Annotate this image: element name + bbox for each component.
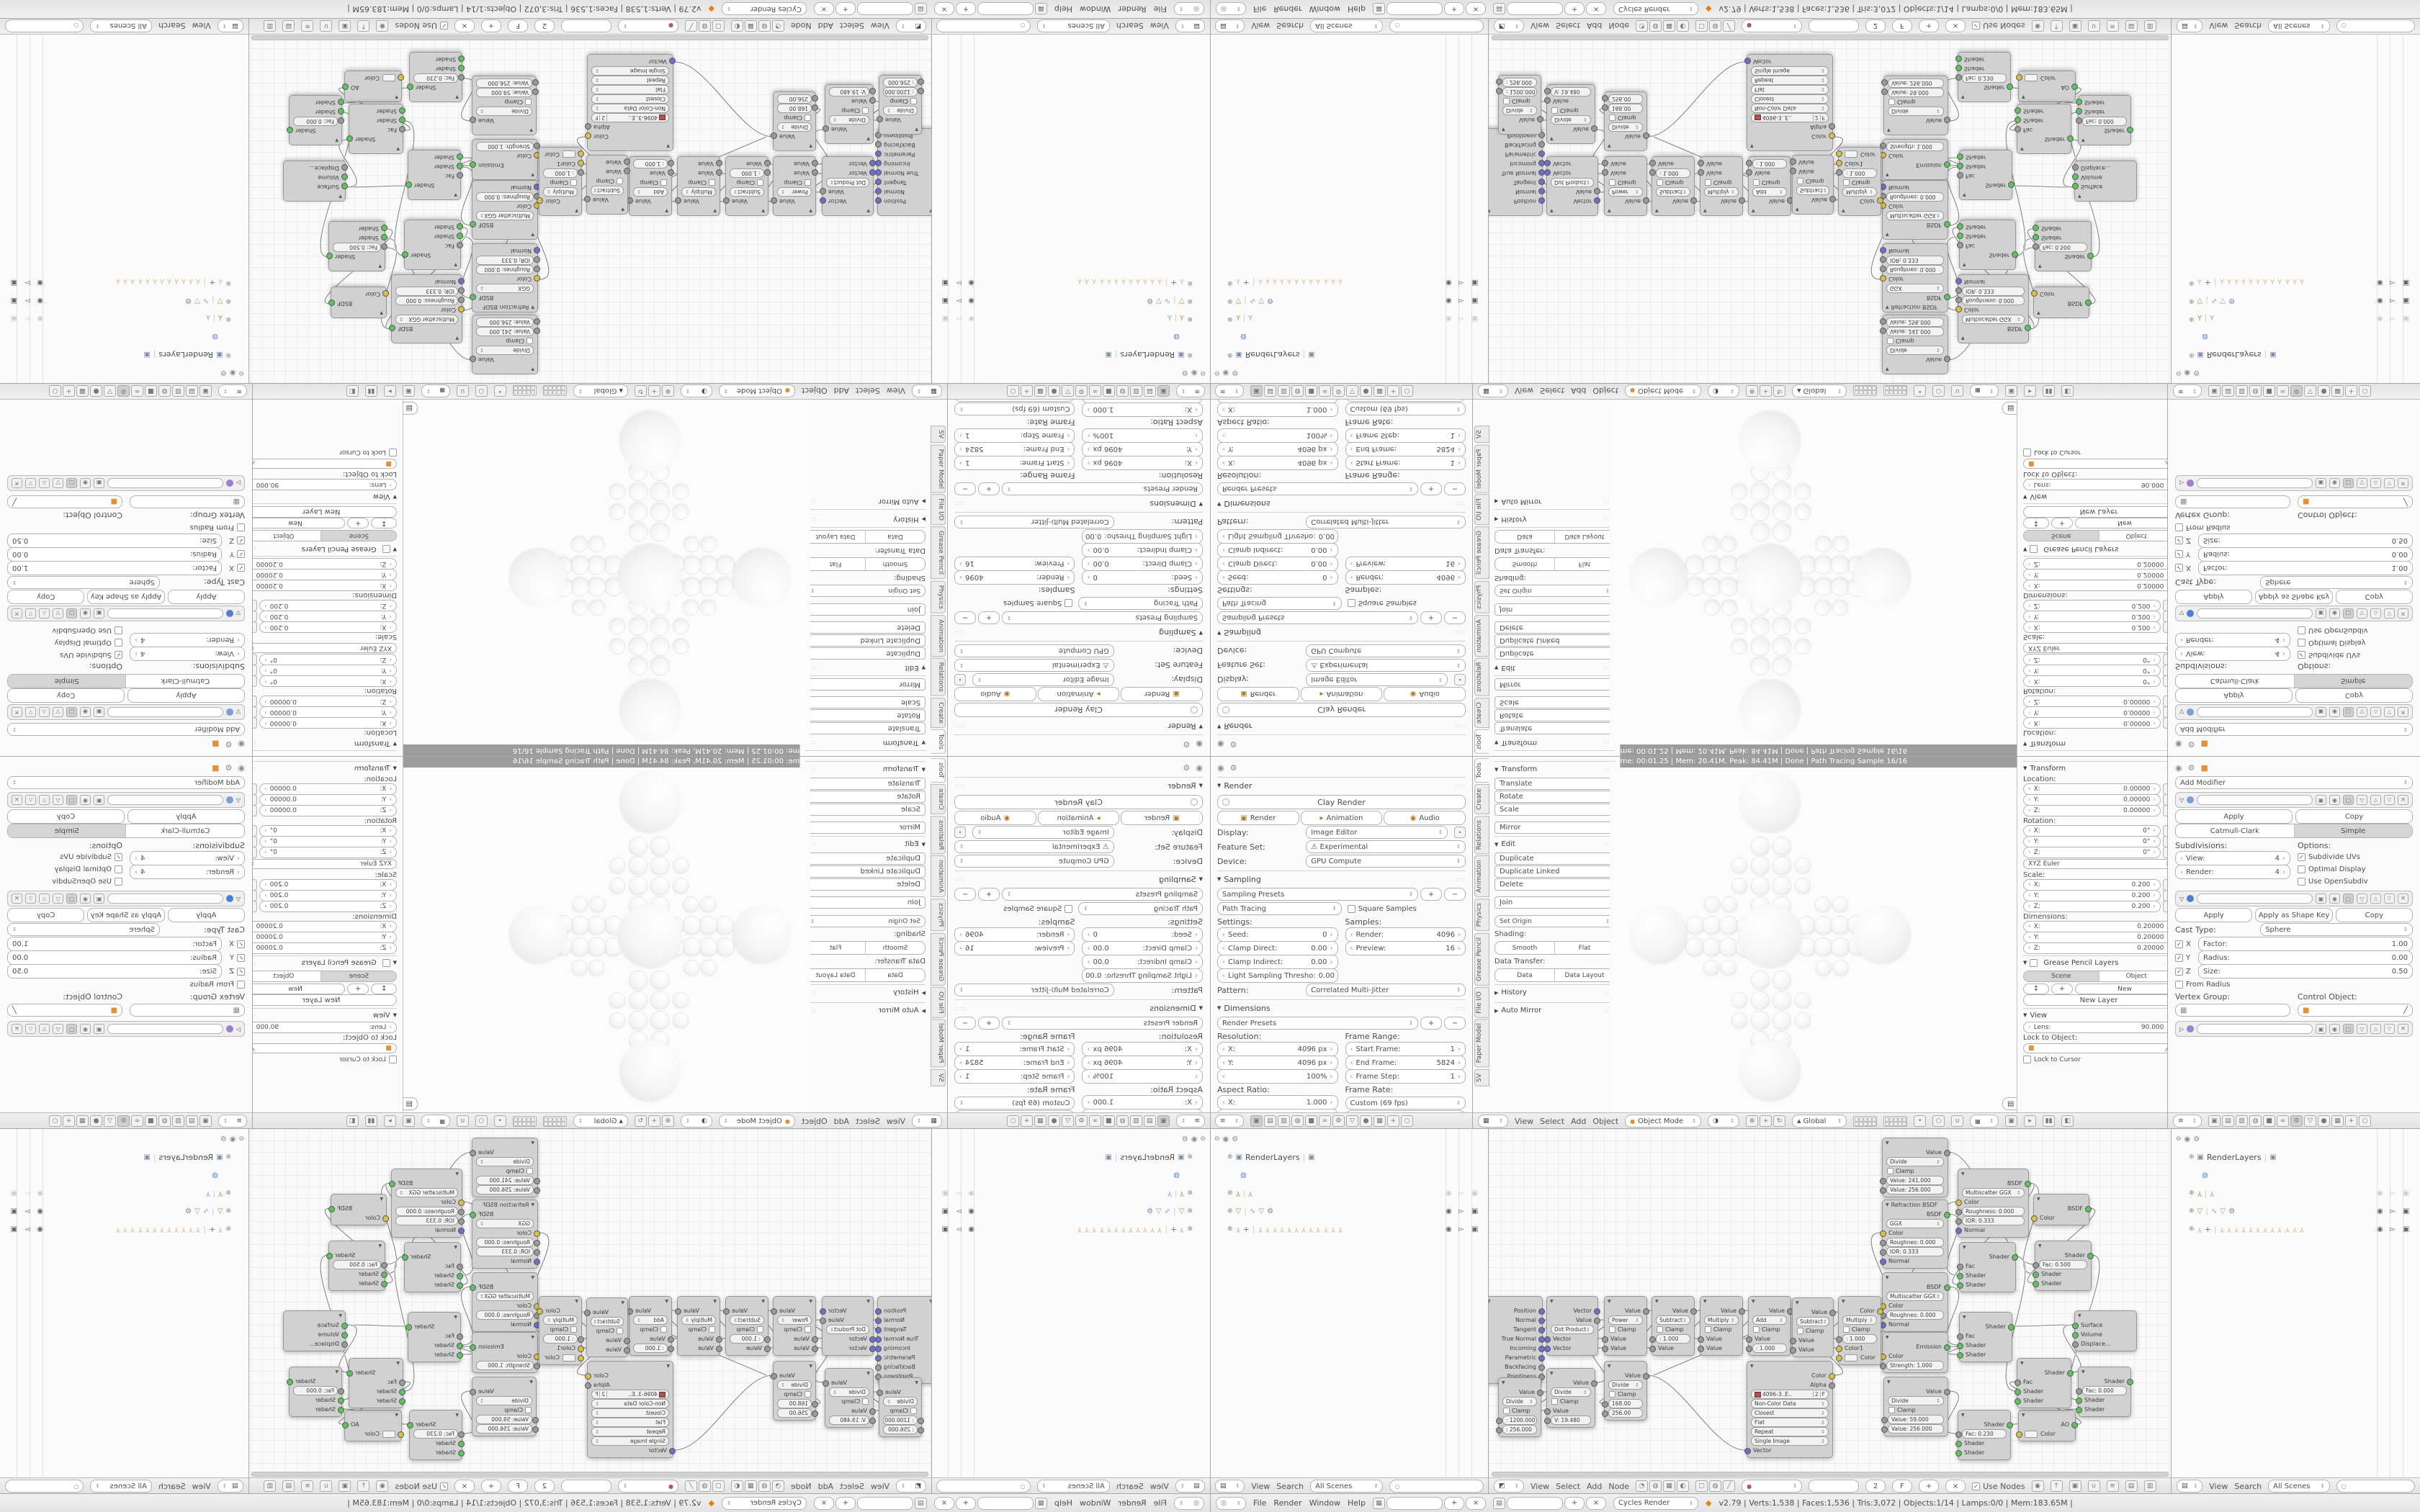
pin-icon[interactable]: ◉ [2175,740,2182,750]
collapse-icon[interactable]: ▼ [1608,1299,1611,1304]
stepper-left-icon[interactable]: ‹ [2028,849,2031,856]
output-socket[interactable] [723,1308,730,1315]
node-header[interactable]: ▼ [1883,170,1948,179]
image-datablock-row[interactable]: 4096-3..E..2F [1751,113,1829,122]
dropdown-field[interactable]: GPU Compute↕ [954,855,1114,868]
move-up-button[interactable]: △ [2370,894,2381,904]
stepper-right-icon[interactable]: › [264,698,267,705]
selectability-icon[interactable]: ▻ [956,1204,962,1218]
stepper-right-icon[interactable]: › [1330,1045,1333,1053]
toggle-option[interactable]: Smooth [866,942,925,954]
shader-node[interactable]: ▼ValueDivide↕ClampValue: 59.000Value: 25… [1883,1377,1948,1436]
stepper-left-icon[interactable]: ‹ [389,656,392,663]
stepper-left-icon[interactable]: ‹ [1350,574,1353,582]
checkbox[interactable] [1065,905,1072,913]
node-dropdown[interactable]: Divide↕ [476,1396,532,1405]
expander-icon[interactable]: ▽ [2179,797,2184,804]
manipulator-icon[interactable]: ⊕ [1746,1115,1758,1127]
stepper-right-icon[interactable]: › [1330,446,1333,454]
number-field[interactable]: ‹100%› [1217,1069,1338,1084]
material-selector[interactable]: ●↕ [1742,1480,1802,1493]
stepper-left-icon[interactable]: ‹ [1067,945,1070,953]
stepper-left-icon[interactable]: ‹ [389,903,392,910]
collapse-icon[interactable]: ▼ [1796,207,1799,212]
big-button[interactable]: Clay Render [954,795,1203,809]
shading-dropdown[interactable]: ◑↕ [1708,1115,1739,1128]
input-socket[interactable] [624,1347,630,1354]
output-socket[interactable] [2012,1254,2018,1261]
input-socket[interactable] [1544,1336,1551,1343]
menu-search[interactable]: Search [1276,22,1304,31]
modifier-toggle-icon[interactable]: ▽ [2357,894,2367,904]
node-dropdown[interactable]: Subtract↕ [1796,1317,1829,1326]
number-field[interactable]: ‹Z:0°› [259,847,397,858]
shader-context-icon[interactable]: ▦ [1663,20,1675,32]
shader-node[interactable]: ▼VectorValueDot Product↕VectorVector [1546,156,1598,216]
big-button[interactable]: New Layer [246,994,397,1006]
stepper-right-icon[interactable]: › [1458,1073,1461,1081]
layer-dot[interactable] [518,1117,522,1122]
fake-user-button[interactable]: F [508,1480,528,1493]
stepper-right-icon[interactable]: › [959,560,962,568]
button[interactable]: Apply [127,688,245,703]
editor-type-selector[interactable]: ◩↕ [1494,1480,1524,1493]
number-field[interactable]: ‹Seed:0› [1217,927,1338,942]
input-socket[interactable] [534,1240,540,1246]
stepper-right-icon[interactable]: › [959,1073,962,1081]
input-socket[interactable] [869,1408,876,1415]
panel-section-header[interactable]: ▼Render:::: [1217,777,1466,793]
collapse-icon[interactable]: ▼ [1502,1380,1505,1385]
dropdown-field[interactable]: Set Origin↕ [1494,915,1615,927]
stepper-left-icon[interactable]: ‹ [1222,546,1225,554]
checkbox-row[interactable]: From Radius [7,978,245,991]
node-editor-scrollbar[interactable] [1492,35,2169,40]
number-field[interactable]: ‹Seed:0› [1083,927,1204,942]
checkbox[interactable] [115,878,122,886]
output-socket[interactable] [1643,1308,1649,1315]
node-header[interactable]: ▼ [1793,1298,1833,1308]
output-socket[interactable] [1877,197,1883,204]
modifier-name-field[interactable] [107,795,223,805]
properties-tab-icon[interactable]: + [2345,1115,2357,1127]
stepper-left-icon[interactable]: ‹ [2028,934,2031,941]
outliner-row[interactable]: ⊕▣RenderLayers|▣ [1227,348,1315,362]
shader-node[interactable]: ▼PositionNormalTangentTrue NormalIncomin… [877,1296,931,1384]
input-socket[interactable] [1602,1410,1608,1417]
number-field[interactable]: ‹End Frame:5824› [954,1056,1075,1070]
modifier-toggle-icon[interactable]: ▽ [2357,795,2367,805]
stepper-left-icon[interactable]: ‹ [1195,459,1198,467]
input-socket[interactable] [1544,97,1551,104]
node-checkbox[interactable] [1503,98,1510,104]
outliner-row[interactable]: ⊕Y+|YYYYYYYYYYYY [1227,1222,1343,1236]
properties-tab-icon[interactable]: ▣ [1157,385,1170,397]
output-socket[interactable] [1944,1284,1950,1291]
menu-view[interactable]: View [1150,1482,1169,1491]
add-material-button[interactable]: + [1919,19,1939,32]
checkbox[interactable]: ✓ [2175,564,2183,572]
stepper-right-icon[interactable]: › [135,650,138,658]
node-checkbox[interactable] [709,1326,715,1333]
properties-tab-icon[interactable]: ◍ [1116,385,1129,397]
properties-tab-icon[interactable]: ▦ [76,385,89,397]
layer-dot[interactable] [552,387,557,391]
input-socket[interactable] [457,1333,463,1340]
toggle-option[interactable]: Data Layout [1554,969,1614,981]
menu-render[interactable]: Render [1273,1498,1301,1508]
add-button[interactable]: + [835,1497,856,1510]
properties-tab-icon[interactable]: ▤ [186,1115,198,1127]
outliner-row[interactable]: ⊕Y+|YYYYYYYYYYYY [2189,276,2304,290]
output-socket[interactable] [1690,1308,1697,1315]
axis-checkbox[interactable]: ✓X [2175,940,2194,948]
properties-tab-icon[interactable]: ⚙ [117,1115,130,1127]
input-socket[interactable] [1836,169,1842,176]
node-number-field[interactable]: Value: 256.000 [1886,1185,1944,1194]
expand-icon[interactable]: ⊕ [1187,1189,1193,1197]
properties-tab-icon[interactable]: ▣ [1157,1115,1170,1127]
node-header-icon[interactable]: ▥ [264,1480,276,1492]
stepper-right-icon[interactable]: › [264,827,267,834]
visibility-icon[interactable]: ◉ [2377,1186,2383,1200]
shader-context-icon[interactable]: ▦ [1663,1480,1675,1492]
node-header-icon[interactable]: ∪ [320,1480,332,1492]
layer-dot[interactable] [544,1117,548,1122]
outliner-row[interactable]: ⊕Y+|YYYYYYYYYYYY [1077,276,1193,290]
output-socket[interactable] [1829,123,1835,130]
stepper-right-icon[interactable]: › [2153,678,2156,685]
panel-section-header[interactable]: ▼Transform:::: [805,735,926,751]
input-socket[interactable] [1746,1336,1752,1343]
number-field[interactable]: Factor:1.00 [7,561,222,575]
input-socket[interactable] [341,1323,348,1329]
node-header[interactable]: ▼ [539,1297,581,1306]
stepper-left-icon[interactable]: ‹ [1222,560,1225,568]
output-socket[interactable] [675,1308,681,1315]
shelf-button[interactable]: Duplicate Linked [1494,865,1615,878]
number-field[interactable]: Radius:0.00 [7,547,222,562]
collapse-icon[interactable]: ▼ [809,208,812,213]
section-checkbox[interactable] [382,546,390,554]
add-preset-button[interactable]: + [1420,1017,1442,1030]
node-number-field[interactable]: Fac: 0.230 [1962,1429,2007,1439]
layer-dot[interactable] [557,387,561,391]
input-socket[interactable] [624,1338,630,1344]
move-up-button[interactable]: △ [39,478,50,488]
name-field[interactable] [977,1497,1034,1510]
color-swatch[interactable] [382,1431,395,1438]
node-header[interactable]: ▼ [1960,1313,2012,1322]
user-count-button[interactable]: 2 [1865,19,1886,32]
properties-tab-icon[interactable]: ■ [145,1115,157,1127]
shelf-tab-grease-pencil[interactable]: Grease Pencil [1474,933,1489,986]
visibility-icon[interactable]: ◉ [968,1222,974,1236]
outliner-item-label[interactable]: RenderLayers [2207,351,2262,360]
stepper-right-icon[interactable]: › [1088,1045,1090,1053]
stepper-right-icon[interactable]: › [1330,1059,1333,1067]
node-dropdown[interactable]: Multiply↕ [681,187,716,197]
properties-tab-icon[interactable]: ▥ [1278,385,1290,397]
color-swatch[interactable] [1845,1354,1857,1362]
node-dropdown[interactable]: Repeat↕ [1751,1427,1829,1436]
panel-section-header[interactable]: ▼Transform:::: [2023,761,2174,775]
shader-node[interactable]: ▼ColorAlpha4096-3..E..2FNon-Color Data↕C… [1747,1361,1833,1458]
lock-icon[interactable]: • [494,1115,506,1127]
input-socket[interactable] [1496,88,1502,94]
visibility-icon[interactable]: ◉ [1446,1222,1452,1236]
input-socket[interactable] [534,1249,540,1256]
input-socket[interactable] [716,160,722,166]
node-checkbox[interactable] [1888,1407,1895,1413]
modifier-toggle-icon[interactable]: ▢ [66,608,77,618]
node-dropdown[interactable]: Non-Color Data↕ [1751,104,1829,113]
shader-context-icon[interactable]: ◔ [1636,20,1648,32]
output-socket[interactable] [1594,188,1600,194]
selectability-icon[interactable]: ▻ [2390,1186,2396,1200]
node-checkbox[interactable] [805,179,811,186]
checkbox-row[interactable]: ✓Subdivide UVs [7,851,122,863]
panel-section-header[interactable]: ▼Dimensions:::: [954,999,1203,1016]
node-checkbox[interactable] [1551,107,1558,114]
renderability-icon[interactable]: ▣ [942,1222,949,1236]
delete-modifier-button[interactable]: × [12,478,22,488]
expand-icon[interactable]: ⊕ [2189,1153,2195,1161]
stepper-right-icon[interactable]: › [264,708,267,716]
checkbox-row[interactable]: Square Samples [1003,905,1072,913]
outliner-row[interactable]: ⊕▽|∿▽⚙ [185,1204,231,1218]
shelf-tab-file-i-o[interactable]: File I/O [1474,495,1489,526]
dropdown-field[interactable]: Path Tracing↕ [1217,902,1342,915]
axis-checkbox[interactable]: ✓Y [2175,551,2194,559]
layers-widget[interactable] [1883,386,1907,397]
collapse-icon[interactable]: ▼ [809,1364,812,1369]
panel-section-header[interactable]: ▼Render:::: [1217,719,1466,735]
color-swatch[interactable] [1845,151,1857,158]
number-field[interactable]: Radius:0.00 [2198,950,2413,965]
input-socket[interactable] [1544,1408,1551,1415]
output-socket[interactable] [585,1373,591,1380]
renderability-icon[interactable]: ▣ [11,1186,17,1200]
shader-node[interactable]: ▼Refraction BSDFBSDFGGX↕ColorRoughnes: 0… [1882,243,1948,312]
add-button[interactable]: + [1444,3,1464,16]
renderability-icon[interactable]: ▣ [1471,276,1478,290]
node-dropdown[interactable]: GGX↕ [1886,284,1944,293]
add-preset-button[interactable]: + [978,1017,1000,1030]
node-checkbox[interactable] [660,1326,667,1333]
panel-section-header[interactable]: ▼Transform:::: [246,737,397,751]
collapse-icon[interactable]: ▼ [2020,1361,2024,1366]
properties-tab-icon[interactable]: ● [2318,385,2330,397]
number-field[interactable]: ‹X:0.00000› [259,783,397,795]
button[interactable]: ▸Animation [1038,811,1120,825]
button[interactable]: ▸Animation [1038,687,1120,701]
shelf-button[interactable]: Rotate [805,791,926,803]
snap-element-dropdown[interactable]: ▦↕ [1970,384,1999,397]
output-socket[interactable] [470,1344,476,1351]
input-socket[interactable] [2015,117,2021,123]
toggle-option[interactable]: Scene [322,971,397,981]
menu-add[interactable]: Add [1571,387,1586,396]
checkbox-row[interactable]: ✓Subdivide UVs [2298,649,2413,661]
shader-node[interactable]: ▼BSDFColor [2033,1194,2089,1225]
node-dropdown[interactable]: Closest↕ [1751,1408,1829,1418]
expand-icon[interactable]: ⊕ [1187,279,1193,287]
properties-tab-icon[interactable]: ◍ [2249,385,2262,397]
input-socket[interactable] [1544,1418,1551,1424]
dropdown-field[interactable]: Correlated Multi-Jitter↕ [954,984,1114,996]
input-socket[interactable] [341,1341,348,1348]
node-dropdown[interactable]: Power↕ [777,187,812,197]
display-mode-dropdown[interactable]: All Scenes↕ [2268,1480,2330,1493]
node-dropdown[interactable]: Divide↕ [1551,1387,1591,1397]
render-shortcut-icon[interactable]: ▣ [403,1115,415,1127]
shelf-tab-tools[interactable]: Tools [931,758,946,783]
shelf-button[interactable]: Duplicate Linked [805,634,926,647]
checkbox[interactable] [2023,1056,2031,1063]
viewport-render-region[interactable] [403,399,810,744]
snap-magnet-icon[interactable]: ∪ [457,385,469,397]
toggle-option[interactable]: Data [866,531,925,543]
number-field[interactable]: ‹X:4096 px› [1217,456,1338,470]
modifier-name-field[interactable] [107,707,223,717]
checkbox[interactable] [2298,639,2305,647]
checkbox[interactable]: ✓ [2175,954,2183,962]
expand-icon[interactable]: ⊕ [2189,297,2195,305]
layer-dot[interactable] [561,1122,565,1126]
node-number-field[interactable]: : 1.000 [1656,168,1690,178]
number-field[interactable]: ‹Light Sampling Thresho:0.00› [1083,529,1204,544]
properties-tab-icon[interactable]: ◍ [1116,1115,1129,1127]
input-socket[interactable] [1957,1264,1963,1270]
input-socket[interactable] [341,1332,348,1338]
node-number-field[interactable]: IOR: 0.333 [1962,1216,2025,1225]
properties-tab-icon[interactable]: ▥ [1278,1115,1290,1127]
node-dropdown[interactable]: Subtract↕ [730,1315,764,1325]
expand-icon[interactable]: ⊕ [1187,1225,1193,1233]
collapse-icon[interactable]: ▼ [529,1380,533,1385]
visibility-icon[interactable]: ◉ [37,1204,43,1218]
stepper-right-icon[interactable]: › [1330,432,1333,440]
shader-node[interactable]: ▼ShaderFacShaderShader [2017,104,2071,154]
expand-icon[interactable]: ⊕ [1227,351,1233,359]
output-socket[interactable] [1538,188,1545,194]
output-socket[interactable] [675,197,681,204]
name-field[interactable] [1507,3,1563,16]
editor-type-selector[interactable]: ▦↕ [1478,1115,1508,1128]
expand-icon[interactable]: ⊖ [1200,1135,1206,1143]
selectability-icon[interactable]: ▻ [956,1186,962,1200]
dropdown-field[interactable]: Image Editor↕ [1306,673,1448,686]
toggle-option[interactable]: Object [2099,971,2174,981]
checkbox[interactable]: ✓ [237,968,245,976]
stepper-left-icon[interactable]: ‹ [2028,602,2031,609]
shader-node[interactable]: ▼ShaderFacShaderShader [1959,220,2016,270]
pin-icon[interactable]: ⚙ [2188,740,2195,750]
modifier-name-field[interactable] [2197,795,2313,805]
toggle-option[interactable]: Smooth [866,558,925,570]
use-nodes-toggle[interactable]: ✓Use Nodes [1972,1482,2025,1491]
checkbox[interactable]: ✓ [237,940,245,948]
shelf-tab-paper-model[interactable]: Paper Model [931,1019,946,1067]
outliner-item-label[interactable]: RenderLayers [1245,351,1300,360]
checkbox[interactable] [115,639,122,647]
node-header[interactable]: ▼ [1489,206,1542,215]
shelf-button[interactable]: Delete [805,878,926,891]
properties-tab-icon[interactable]: ▤ [2222,385,2234,397]
input-socket[interactable] [1790,1347,1796,1354]
menu-select[interactable]: Select [1540,387,1564,396]
properties-tab-icon[interactable]: ⚙ [1332,1115,1345,1127]
node-dropdown[interactable]: GGX↕ [1886,1219,1944,1228]
presets-dropdown[interactable]: Render Presets↕ [1217,1017,1418,1030]
stepper-right-icon[interactable]: › [959,574,962,582]
node-header[interactable]: ▼ [1839,206,1881,215]
input-socket[interactable] [1881,1417,1888,1423]
node-dropdown[interactable]: Repeat↕ [591,1427,669,1436]
number-field[interactable]: ‹100%› [1083,1069,1204,1084]
toggle-option[interactable]: Smooth [1495,558,1554,570]
input-socket[interactable] [1746,169,1752,176]
input-socket[interactable] [381,1281,387,1287]
shader-node[interactable]: ▼ShaderFac: 0.000ShaderShader [2078,1367,2131,1417]
node-number-field[interactable]: : 1.000 [1842,1334,1877,1344]
expand-icon[interactable]: ⊕ [1187,315,1193,323]
modifier-toggle-icon[interactable]: ▢ [66,1024,77,1034]
shader-node[interactable]: ▼ShaderFac: 0.500ShaderShader [328,1241,385,1291]
modifier-name-field[interactable] [2197,707,2313,717]
move-up-button[interactable]: △ [2370,795,2381,805]
node-number-field[interactable]: Roughnes: 0.000 [1886,265,1944,274]
input-socket[interactable] [1957,153,1963,160]
node-header[interactable]: ▼ [1960,1243,2015,1252]
input-socket[interactable] [534,1230,540,1237]
proportional-edit-icon[interactable]: ○ [475,385,488,397]
visibility-icon[interactable]: ◉ [2377,1222,2383,1236]
shelf-button[interactable]: Scale [1494,696,1615,708]
number-field[interactable]: ‹Y:0.200› [2023,611,2161,622]
node-checkbox[interactable] [1503,1408,1510,1414]
outliner-row[interactable]: ⊕Y+|YYYYYYYYYYYY [1227,276,1343,290]
render-shortcut-icon[interactable]: ▮▮ [365,385,377,397]
shelf-tab-create[interactable]: Create [1474,698,1489,728]
stepper-right-icon[interactable]: › [1337,533,1338,541]
output-socket[interactable] [1538,1355,1545,1362]
number-field[interactable]: Factor:1.00 [2198,561,2413,575]
renderability-icon[interactable]: ▣ [2403,276,2409,290]
input-socket[interactable] [458,1431,465,1438]
shader-node[interactable]: ▼ValueDivide↕Clamp168.00256.00 [773,1361,816,1421]
layer-dot[interactable] [552,1117,557,1122]
checkbox[interactable] [2175,981,2183,989]
number-field[interactable]: ‹Z:0.00000› [259,696,397,707]
checkbox[interactable] [1348,600,1355,608]
output-socket[interactable] [875,1346,882,1352]
snap-element-dropdown[interactable]: ▦↕ [421,384,450,397]
tool-shelf-tabs[interactable]: ToolsCreateRelationsAnimationPhysicsGrea… [931,400,946,755]
number-field[interactable]: ‹Frame Step:1› [954,1069,1075,1084]
selectability-icon[interactable]: ▻ [1458,1204,1464,1218]
shader-node[interactable]: ▼ValueMultiply↕ClampValueValue [1700,1296,1743,1356]
properties-tab-icon[interactable]: ▽ [104,385,116,397]
number-field[interactable]: ‹Y:0.20000› [246,932,397,943]
expander-icon[interactable]: ▷ [236,480,241,487]
color-swatch[interactable] [563,1354,575,1362]
add-icon[interactable]: + [2051,518,2073,528]
dropdown-field[interactable]: Custom (69 fps)↕ [1345,402,1466,415]
big-button[interactable]: Clay Render [1217,703,1466,717]
properties-tab-icon[interactable]: ▤ [1264,1115,1276,1127]
